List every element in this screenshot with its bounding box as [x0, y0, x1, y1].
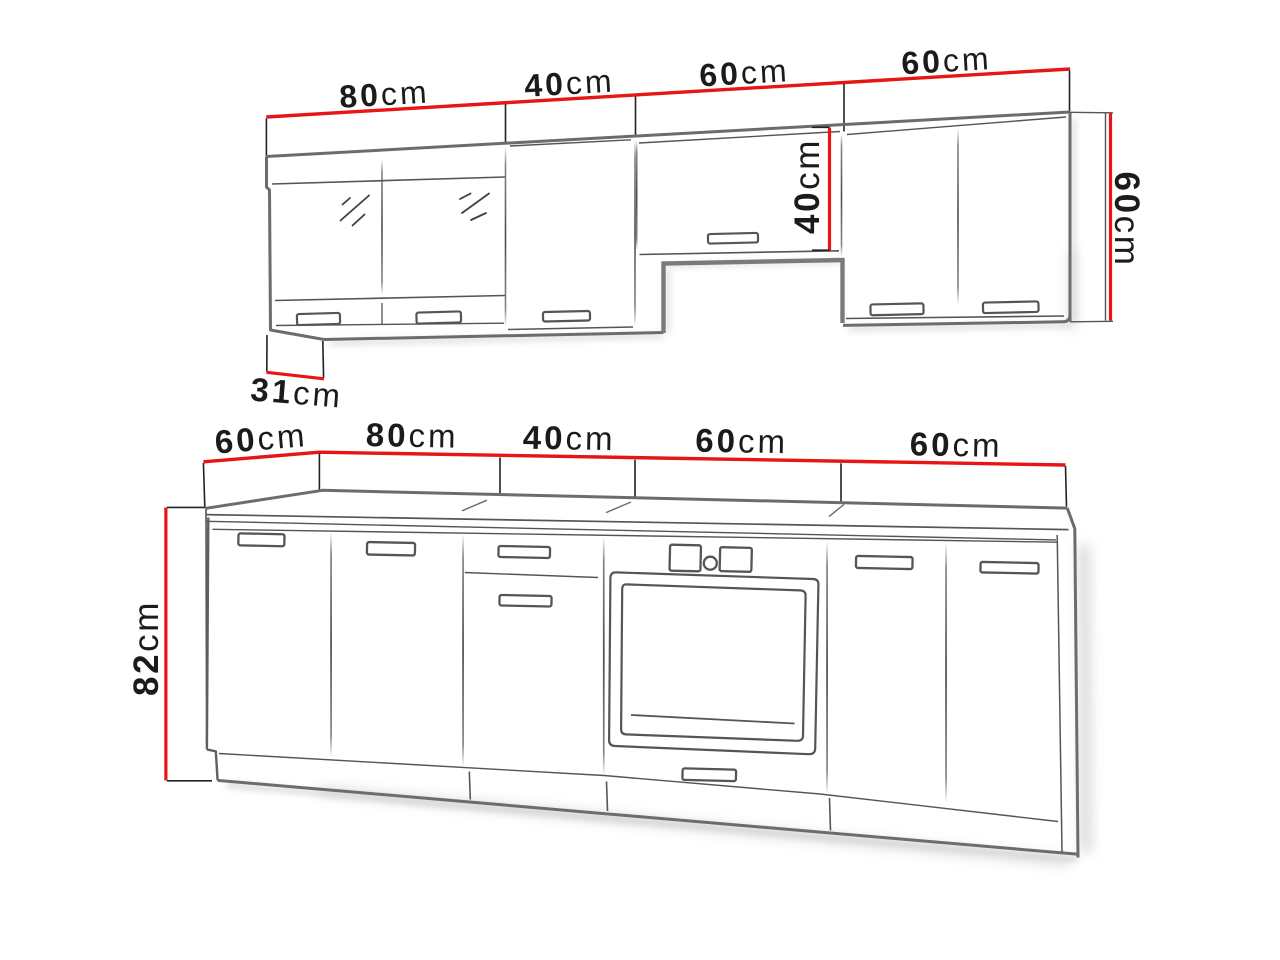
- svg-text:40cm: 40cm: [788, 138, 827, 234]
- svg-text:82cm: 82cm: [127, 600, 166, 696]
- svg-text:80cm: 80cm: [366, 416, 459, 455]
- svg-text:40cm: 40cm: [523, 419, 616, 458]
- svg-text:60cm: 60cm: [695, 422, 788, 461]
- svg-text:60cm: 60cm: [213, 416, 308, 460]
- svg-text:40cm: 40cm: [523, 63, 615, 104]
- svg-text:60cm: 60cm: [900, 40, 992, 81]
- svg-text:60cm: 60cm: [910, 425, 1003, 464]
- svg-text:60cm: 60cm: [698, 52, 790, 93]
- svg-text:80cm: 80cm: [338, 74, 430, 115]
- svg-text:60cm: 60cm: [1107, 172, 1146, 268]
- svg-text:31cm: 31cm: [249, 370, 344, 414]
